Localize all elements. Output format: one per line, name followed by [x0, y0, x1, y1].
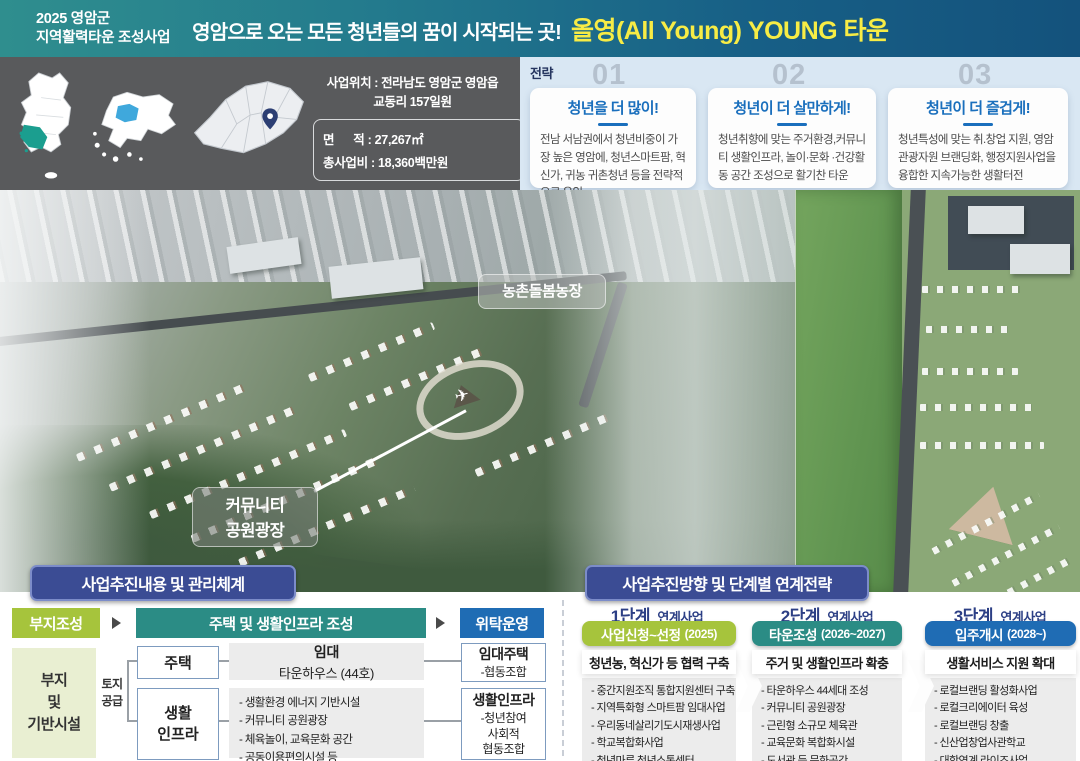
site-budget-row: 총사업비 : 18,360백만원 — [323, 152, 515, 171]
stage-3-items: - 로컬브랜딩 활성화사업 - 로컬크리에이터 육성 - 로컬브랜딩 창출 - … — [925, 678, 1076, 761]
stage-2-year: (2026~2027) — [821, 627, 885, 641]
stage-3-subtitle: 생활서비스 지원 확대 — [925, 650, 1076, 674]
stage-item: - 학교복합화사업 — [591, 735, 736, 752]
render-fog — [545, 190, 795, 592]
program-line2: 지역활력타운 조성사업 — [36, 29, 170, 47]
operation-infra-title: 생활인프라 — [473, 690, 535, 710]
top-banner: 2025 영암군 지역활력타운 조성사업 영암으로 오는 모든 청년들의 꿈이 … — [0, 0, 1080, 57]
connector-line — [127, 660, 129, 722]
operation-infra-sub: -청년참여 사회적 협동조합 — [481, 711, 527, 758]
render-building — [968, 206, 1024, 234]
arrow-right-icon — [436, 617, 445, 629]
rental-title: 임대 — [314, 642, 339, 662]
site-info-panel: 사업위치 : 전라남도 영암군 영암읍 교동리 157일원 면 적 : 27,2… — [305, 57, 520, 190]
site-render-birdview — [0, 190, 795, 592]
stage-item: - 중간지원조직 통합지원센터 구축 — [591, 683, 736, 700]
rental-housing-box: 임대 타운하우스 (44호) — [229, 643, 424, 680]
stage-item: - 근린형 소규모 체육관 — [761, 718, 902, 735]
housing-box: 주택 — [137, 646, 219, 679]
render-forest — [796, 190, 902, 592]
rental-subtitle: 타운하우스 (44호) — [279, 663, 374, 682]
strategy-card-2-body: 청년취향에 맞는 주거환경,커뮤니티 생활인프라, 놀이·문화 ·건강활동 공간… — [708, 132, 876, 185]
infra-item: - 생활환경 에너지 기반시설 — [239, 694, 424, 712]
stage-1-bar-label: 사업신청~선정 — [601, 624, 681, 644]
gyodongri-map — [188, 75, 310, 175]
stage-item: - 청년마루 청년소통센터 — [591, 753, 736, 761]
divider — [963, 123, 993, 126]
site-location-line2: 교동리 157일원 — [305, 93, 520, 112]
infra-item: - 커뮤니티 공원광장 — [239, 712, 424, 730]
strategy-label: 전략 — [530, 63, 553, 82]
stage-1-bar: 사업신청~선정 (2025) — [582, 621, 736, 646]
stage-item: - 커뮤니티 공원광장 — [761, 700, 902, 717]
connector-line — [127, 720, 137, 722]
connector-line — [424, 660, 461, 662]
program-line1: 2025 영암군 — [36, 10, 170, 28]
stage-item: - 신산업창업사관학교 — [934, 735, 1076, 752]
site-and-infrastructure-box: 부지 및 기반시설 — [12, 648, 96, 758]
site-area-row: 면 적 : 27,267㎡ — [323, 129, 515, 148]
stage-3-bar: 입주개시 (2028~) — [925, 621, 1076, 646]
infra-item: - 체육놀이, 교육문화 공간 — [239, 731, 424, 749]
stage-item: - 타운하우스 44세대 조성 — [761, 683, 902, 700]
stage-2-bar: 타운조성 (2026~2027) — [752, 621, 902, 646]
panel-divider — [562, 600, 564, 756]
stage-item: - 로컬크리에이터 육성 — [934, 700, 1076, 717]
label-community-plaza: 커뮤니티 공원광장 — [192, 487, 318, 547]
divider — [598, 123, 628, 126]
stage-3-bar-label: 입주개시 — [955, 624, 1003, 644]
connector-line — [424, 720, 461, 722]
strategy-card-2: 청년이 더 살만하게! 청년취향에 맞는 주거환경,커뮤니티 생활인프라, 놀이… — [708, 88, 876, 188]
poster: 2025 영암군 지역활력타운 조성사업 영암으로 오는 모든 청년들의 꿈이 … — [0, 0, 1080, 761]
banner-brand-title: 올영(All Young) YOUNG 타운 — [571, 11, 889, 47]
label-care-farm: 농촌돌봄농장 — [478, 274, 606, 309]
stage-item: - 지역특화형 스마트팜 임대사업 — [591, 700, 736, 717]
aerial-render-area: ✈ 농촌돌봄농장 커뮤니티 공원광장 — [0, 190, 1080, 592]
land-supply-label: 토지 공급 — [98, 676, 126, 710]
strategy-card-3-title: 청년이 더 즐겁게! — [888, 97, 1068, 118]
stage-item: - 도서관 등 문화공간 — [761, 753, 902, 761]
roadmap-section-header: 사업추진방향 및 단계별 연계전략 — [585, 565, 869, 601]
stage-item: - 우리동네살리기도시재생사업 — [591, 718, 736, 735]
banner-slogan: 영암으로 오는 모든 청년들의 꿈이 시작되는 곳! — [192, 16, 561, 45]
stage-item: - 로컬브랜딩 창출 — [934, 718, 1076, 735]
operation-rental-sub: -협동조합 — [481, 665, 527, 681]
divider — [777, 123, 807, 126]
site-render-siteplan — [795, 190, 1080, 592]
korea-map — [14, 67, 88, 185]
operation-rental-title: 임대주택 — [479, 644, 529, 664]
stage-2-items: - 타운하우스 44세대 조성 - 커뮤니티 공원광장 - 근린형 소규모 체육… — [752, 678, 902, 761]
stage-1-items: - 중간지원조직 통합지원센터 구축 - 지역특화형 스마트팜 임대사업 - 우… — [582, 678, 736, 761]
strategy-card-3-body: 청년특성에 맞는 취.창업 지원, 영암 관광자원 브랜딩화, 행정지원사업을 … — [888, 132, 1068, 185]
connector-line — [127, 660, 137, 662]
strategy-section: 전략 01 02 03 청년을 더 많이! 전남 서남권에서 청년비중이 가장 … — [520, 57, 1080, 190]
step-site-development: 부지조성 — [12, 608, 100, 638]
jeonnam-map — [88, 85, 180, 171]
infra-detail-box: - 생활환경 에너지 기반시설 - 커뮤니티 공원광장 - 체육놀이, 교육문화… — [229, 688, 424, 758]
step-housing-infra: 주택 및 생활인프라 조성 — [136, 608, 426, 638]
operation-rental-box: 임대주택 -협동조합 — [461, 643, 546, 682]
step-operation: 위탁운영 — [460, 608, 544, 638]
stage-2-bar-label: 타운조성 — [769, 624, 817, 644]
program-title: 2025 영암군 지역활력타운 조성사업 — [36, 10, 170, 46]
site-info-box: 면 적 : 27,267㎡ 총사업비 : 18,360백만원 — [313, 119, 525, 181]
living-infra-box: 생활 인프라 — [137, 688, 219, 760]
infra-item: - 공동이용편의시설 등 — [239, 749, 424, 761]
management-section-header: 사업추진내용 및 관리체계 — [30, 565, 296, 601]
render-building — [1010, 244, 1070, 274]
stage-item: - 대학연계 라이즈사업 — [934, 753, 1076, 761]
strategy-card-2-title: 청년이 더 살만하게! — [708, 97, 876, 118]
render-fog — [0, 190, 150, 592]
strategy-card-3: 청년이 더 즐겁게! 청년특성에 맞는 취.창업 지원, 영암 관광자원 브랜딩… — [888, 88, 1068, 188]
arrow-right-icon — [112, 617, 121, 629]
stage-item: - 교육문화 복합화시설 — [761, 735, 902, 752]
site-location-line1: 사업위치 : 전라남도 영암군 영암읍 — [305, 74, 520, 93]
stage-3-year: (2028~) — [1007, 627, 1046, 641]
stage-2-subtitle: 주거 및 생활인프라 확충 — [752, 650, 902, 674]
strategy-card-1-title: 청년을 더 많이! — [530, 97, 696, 118]
operation-infra-box: 생활인프라 -청년참여 사회적 협동조합 — [461, 688, 546, 760]
stage-1-subtitle: 청년농, 혁신가 등 협력 구축 — [582, 650, 736, 674]
stage-item: - 로컬브랜딩 활성화사업 — [934, 683, 1076, 700]
stage-1-year: (2025) — [685, 627, 717, 641]
strategy-card-1: 청년을 더 많이! 전남 서남권에서 청년비중이 가장 높은 영암에, 청년스마… — [530, 88, 696, 188]
